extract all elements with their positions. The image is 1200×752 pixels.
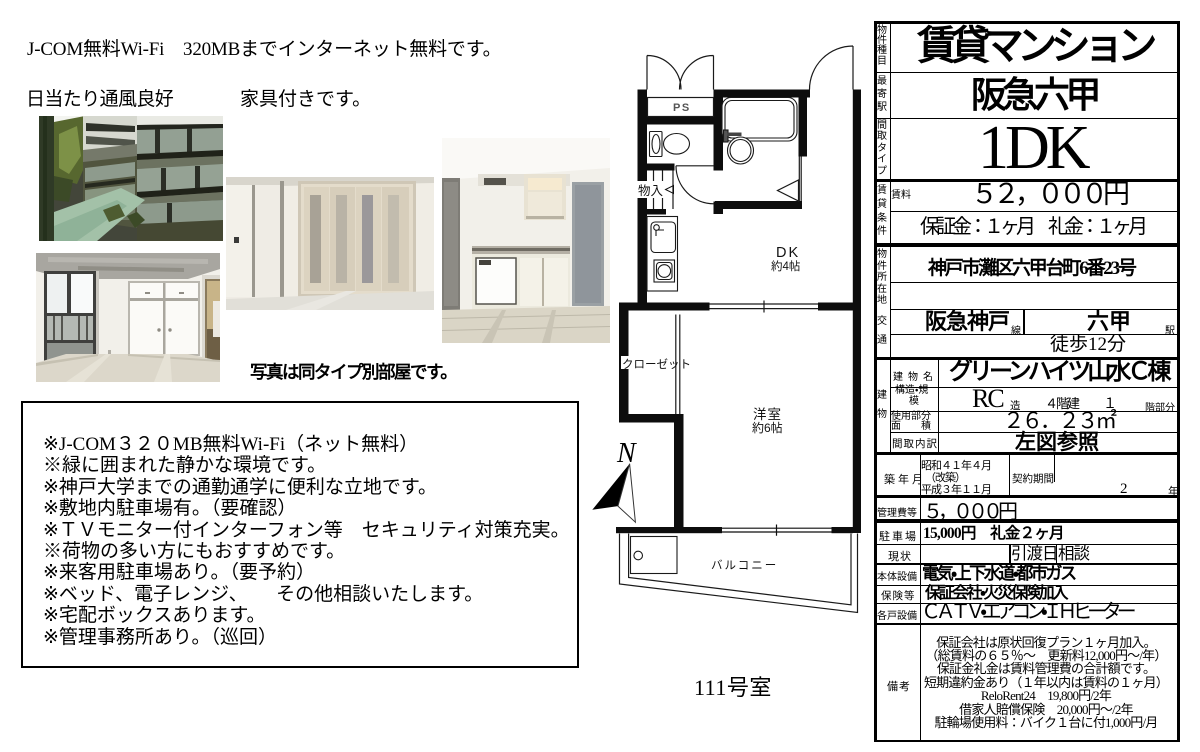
svg-text:約4帖: 約4帖 [771,259,800,273]
svg-text:物入: 物入 [638,184,664,198]
svg-text:N: N [616,438,637,469]
svg-text:クローゼット: クローゼット [622,358,691,371]
svg-text:バルコニー: バルコニー [711,559,778,572]
svg-text:PS: PS [673,102,691,114]
svg-text:DK: DK [776,245,800,261]
svg-text:約6帖: 約6帖 [752,420,783,435]
svg-text:洋室: 洋室 [753,407,782,422]
